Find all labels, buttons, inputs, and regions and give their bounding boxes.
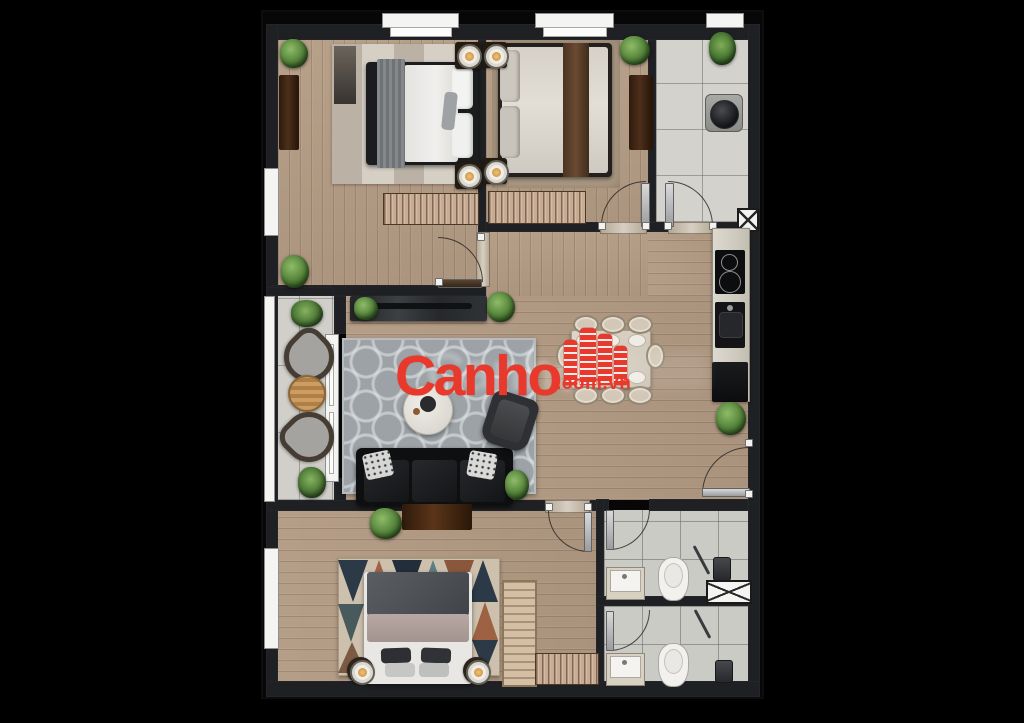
washer-drum (710, 100, 739, 129)
bedroom3-duvet (367, 572, 469, 618)
lamp-icon (457, 164, 482, 189)
door-leaf-bedroom2 (641, 183, 650, 227)
bedroom1-rug-dark-patch (334, 46, 356, 104)
window-top-3 (706, 13, 744, 28)
door-hinge-cap (435, 278, 443, 286)
door-hinge-cap (745, 439, 753, 447)
plant-icon (281, 255, 309, 288)
floorplan-render: Canho Canho .com.vn (0, 0, 1024, 723)
bedroom1-wardrobe (279, 75, 299, 150)
door-leaf-service (702, 488, 750, 497)
plant-icon (487, 292, 515, 322)
wall-balcony-living-top (334, 296, 346, 334)
door-leaf-bedroom3 (584, 512, 592, 552)
watermark-brand-text: Canho (395, 343, 560, 409)
bedroom3-pillow (421, 647, 452, 663)
toilet-icon (658, 557, 689, 601)
bedroom2-dresser (488, 191, 586, 224)
sink-faucet (727, 305, 733, 311)
bedroom2-bed-runner (563, 43, 589, 177)
balcony-railing (264, 296, 275, 502)
plant-icon (716, 402, 746, 435)
sink-faucet (622, 574, 627, 579)
door-hinge-cap (745, 490, 753, 498)
window-left-bedroom1 (264, 168, 279, 236)
wall-bath-top-2 (649, 499, 748, 511)
bedroom3-pillow (419, 663, 449, 677)
window-top-2-frame (543, 27, 607, 37)
dining-chair (627, 315, 653, 334)
wall-balcony-top (266, 287, 334, 296)
plant-icon (354, 297, 378, 320)
toilet-icon (658, 643, 689, 687)
window-top-2 (535, 13, 614, 28)
cooktop-burner (719, 271, 741, 293)
bedroom1-dresser (383, 193, 479, 225)
door-hinge-cap (598, 222, 606, 230)
lamp-icon (457, 44, 482, 69)
bedroom2-pillow (500, 106, 520, 158)
door-hinge-cap (664, 222, 672, 230)
bedroom3-bench (535, 653, 599, 685)
window-top-1 (382, 13, 459, 28)
bedroom1-pillow (452, 113, 473, 158)
door-hinge-cap (477, 233, 485, 241)
bedroom3-pillow (385, 663, 415, 677)
plant-icon (620, 36, 650, 65)
tv-soundbar (372, 303, 472, 309)
cooktop-burner (721, 254, 738, 271)
plant-icon (505, 470, 529, 500)
window-top-1-frame (390, 27, 452, 37)
plant-icon (280, 39, 308, 68)
bedroom3-console (402, 504, 472, 530)
door-leaf-bathroom2 (606, 611, 614, 651)
bedroom1-bed-throw (377, 59, 405, 168)
lamp-icon (484, 160, 509, 185)
lamp-icon (350, 660, 375, 685)
plant-icon (370, 508, 402, 539)
plant-icon (298, 467, 326, 498)
coffee-table-decor (413, 408, 420, 415)
door-hinge-cap (545, 503, 553, 511)
lamp-icon (484, 44, 509, 69)
ladder-shelf (502, 580, 537, 687)
plant-icon (291, 300, 323, 327)
sofa-seat (412, 460, 457, 502)
sofa-pillow (466, 450, 498, 480)
bedroom3-duvet-fold (367, 614, 469, 642)
plant-icon (709, 32, 736, 65)
window-left-bedroom3 (264, 548, 279, 649)
door-hinge-cap (584, 503, 592, 511)
door-leaf-bathroom1 (606, 510, 614, 550)
balcony-table (288, 375, 326, 412)
sink-faucet (622, 660, 627, 665)
sink-basin (719, 312, 743, 338)
shower-head (713, 557, 731, 581)
door-leaf-laundry (665, 183, 674, 227)
shower-head (715, 660, 733, 683)
kitchen-base-cabinet (712, 362, 748, 402)
bedroom2-wardrobe (629, 75, 653, 150)
shaft-x-icon (706, 580, 752, 604)
wall-bed1-bed2 (478, 40, 486, 232)
wall-top (266, 24, 760, 40)
lamp-icon (466, 660, 491, 685)
plate (628, 334, 646, 347)
watermark-suffix-text: .com.vn (556, 373, 631, 395)
bedroom3-pillow (381, 647, 412, 663)
door-hinge-cap (642, 222, 650, 230)
door-leaf-bedroom1 (438, 279, 482, 288)
